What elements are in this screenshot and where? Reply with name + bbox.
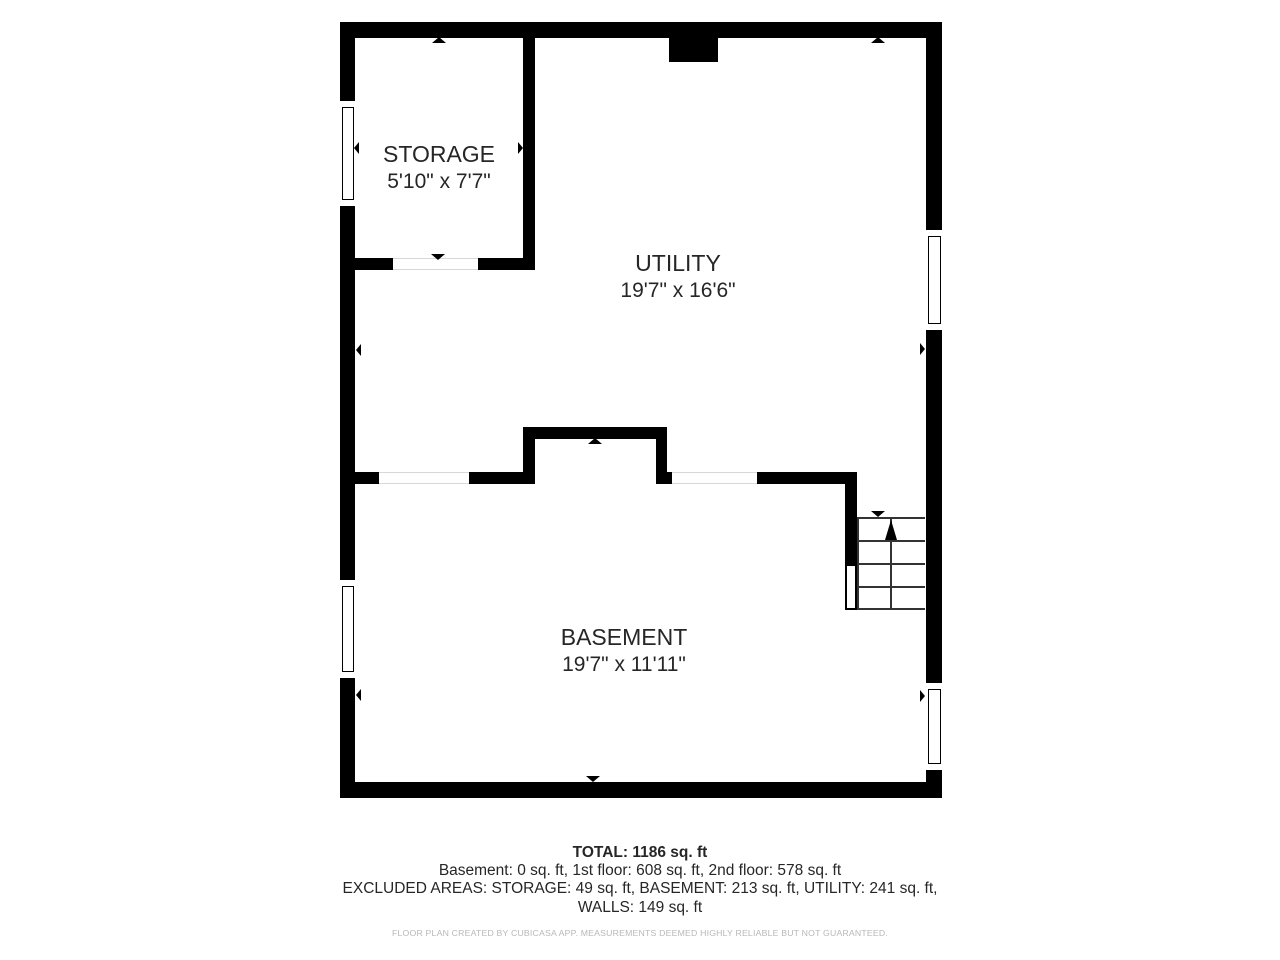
wall-alcove-right (656, 427, 667, 484)
wall-storage-bottom-right (478, 258, 535, 270)
stair-tread-line (859, 586, 925, 588)
excluded-areas-line: EXCLUDED AREAS: STORAGE: 49 sq. ft, BASE… (0, 880, 1280, 898)
wall-outer-right (926, 22, 942, 798)
stairs-up-arrow-icon (885, 520, 897, 540)
wall-stairwell (845, 472, 857, 564)
room-dimensions: 19'7" x 11'11" (561, 651, 688, 678)
excluded-areas-line-continuation: WALLS: 149 sq. ft (0, 899, 1280, 917)
marker-up-utility-icon (871, 37, 885, 43)
room-name: STORAGE (383, 140, 495, 168)
window-pane (928, 236, 941, 324)
wall-storage-bottom-left (340, 258, 393, 270)
room-dimensions: 5'10" x 7'7" (383, 168, 495, 195)
total-area-line: TOTAL: 1186 sq. ft (0, 844, 1280, 862)
marker-up-alcove-icon (588, 438, 602, 444)
marker-left-utility-icon (356, 344, 361, 356)
wall-storage-right (523, 22, 535, 270)
room-name: UTILITY (620, 249, 735, 277)
wall-divider-d (757, 472, 857, 484)
stair-tread-line (859, 563, 925, 565)
window-storage-left (340, 101, 355, 206)
marker-down-basement-icon (586, 776, 600, 782)
stairs (857, 517, 925, 610)
window-pane (342, 586, 354, 672)
marker-right-storage-icon (518, 142, 523, 154)
window-basement-right (926, 683, 942, 770)
divider-opening-left (379, 472, 469, 484)
wall-outer-top (340, 22, 942, 38)
room-name: BASEMENT (561, 623, 688, 651)
window-pane (928, 689, 941, 764)
window-pane (342, 107, 354, 200)
marker-up-storage-icon (432, 37, 446, 43)
marker-down-storage-door-icon (431, 254, 445, 260)
window-utility-right (926, 230, 942, 330)
divider-opening-right (672, 472, 757, 484)
marker-right-utility-icon (920, 343, 925, 355)
room-label-utility: UTILITY 19'7" x 16'6" (620, 249, 735, 304)
wall-outer-bottom (340, 782, 942, 798)
marker-left-storage-icon (354, 142, 359, 154)
room-label-storage: STORAGE 5'10" x 7'7" (383, 140, 495, 195)
wall-divider-a (355, 472, 379, 484)
window-basement-left (340, 580, 355, 678)
area-summary: TOTAL: 1186 sq. ft Basement: 0 sq. ft, 1… (0, 844, 1280, 917)
stair-tread-line (859, 540, 925, 542)
room-dimensions: 19'7" x 16'6" (620, 277, 735, 304)
room-label-basement: BASEMENT 19'7" x 11'11" (561, 623, 688, 678)
stair-door-opening (845, 564, 857, 610)
chimney-notch (669, 37, 718, 62)
marker-right-basement-icon (920, 690, 925, 702)
disclaimer-text: FLOOR PLAN CREATED BY CUBICASA APP. MEAS… (0, 928, 1280, 939)
floor-plan: STORAGE 5'10" x 7'7" UTILITY 19'7" x 16'… (0, 0, 1280, 960)
marker-left-basement-icon (356, 689, 361, 701)
floors-area-line: Basement: 0 sq. ft, 1st floor: 608 sq. f… (0, 862, 1280, 880)
marker-down-stairs-icon (871, 511, 885, 517)
